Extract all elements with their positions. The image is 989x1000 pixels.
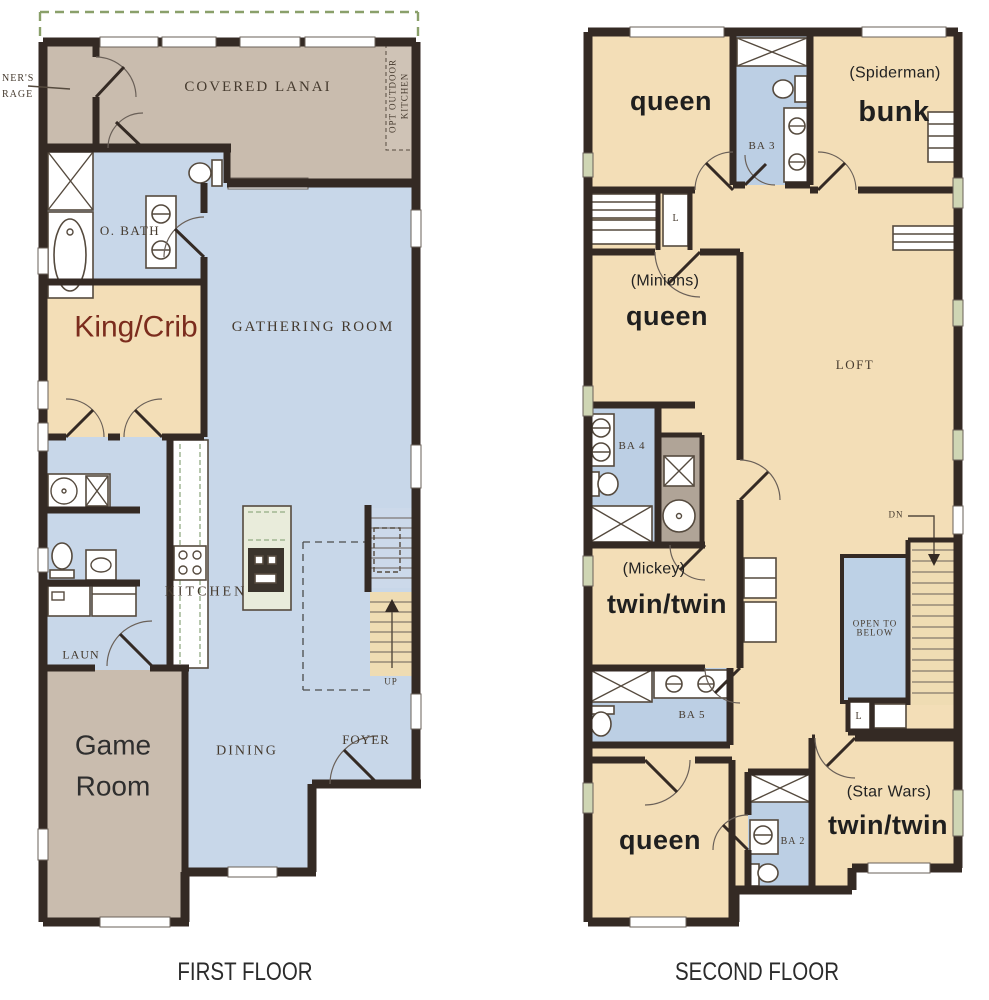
bed-label-twin-mid: twin/twin <box>607 590 727 618</box>
second-floor-caption: SECOND FLOOR <box>675 959 839 985</box>
screen-enclosure <box>40 12 418 40</box>
room-label-loft: LOFT <box>836 358 875 372</box>
opt-outdoor-kitchen-line2: KITCHEN <box>399 59 411 133</box>
owners-garage-callout-line2: RAGE <box>2 87 34 103</box>
king-crib-floor <box>47 284 204 437</box>
bed-label-queen-top: queen <box>630 87 712 115</box>
game-room-line1: Game <box>75 725 151 766</box>
first-floor-caption: FIRST FLOOR <box>177 959 312 985</box>
bed-label-queen-bottom: queen <box>619 826 701 854</box>
theme-label-starwars: (Star Wars) <box>847 785 931 802</box>
room-label-kitchen: KITCHEN <box>165 586 247 601</box>
theme-label-spiderman: (Spiderman) <box>849 66 940 83</box>
room-label-opt-outdoor-kitchen: OPT OUTDOOR KITCHEN <box>387 59 410 133</box>
room-label-bath3: BA 3 <box>749 141 776 153</box>
opt-outdoor-kitchen-line1: OPT OUTDOOR <box>387 59 399 133</box>
room-label-foyer: FOYER <box>342 733 390 747</box>
room-label-king-crib: King/Crib <box>74 311 197 343</box>
room-label-bath2: BA 2 <box>781 837 806 848</box>
room-label-laundry: LAUN <box>62 649 99 662</box>
stairs-up-label: UP <box>384 677 398 686</box>
owners-garage-callout-line1: NER'S <box>2 71 34 87</box>
room-label-bath4: BA 4 <box>619 441 646 453</box>
game-room-line2: Room <box>75 766 151 807</box>
linen-closet-label-1: L <box>672 214 679 225</box>
room-label-gathering-room: GATHERING ROOM <box>232 320 395 336</box>
linen-closet-label-2: L <box>855 712 862 723</box>
theme-label-minions: (Minions) <box>631 274 700 291</box>
open-to-below-label: OPEN TO BELOW <box>853 620 897 639</box>
room-label-dining: DINING <box>216 745 278 760</box>
bed-label-twin-bottom: twin/twin <box>828 811 948 839</box>
owners-garage-callout: NER'S RAGE <box>2 71 34 103</box>
room-label-bath5: BA 5 <box>679 710 706 722</box>
room-label-covered-lanai: COVERED LANAI <box>184 80 331 96</box>
bed-label-queen-mid: queen <box>626 302 708 330</box>
open-to-below-line2: BELOW <box>853 629 897 638</box>
floor-plan-canvas <box>0 0 989 1000</box>
room-label-owners-bath: O. BATH <box>100 224 160 238</box>
bed-label-bunk: bunk <box>858 97 929 127</box>
bath2-fixtures <box>750 820 778 886</box>
floor-plan-figure: NER'S RAGE COVERED LANAI OPT OUTDOOR KIT… <box>0 0 989 1000</box>
theme-label-mickey: (Mickey) <box>623 562 686 579</box>
stairs-down-label: DN <box>889 510 904 519</box>
room-label-game-room: Game Room <box>75 725 151 806</box>
